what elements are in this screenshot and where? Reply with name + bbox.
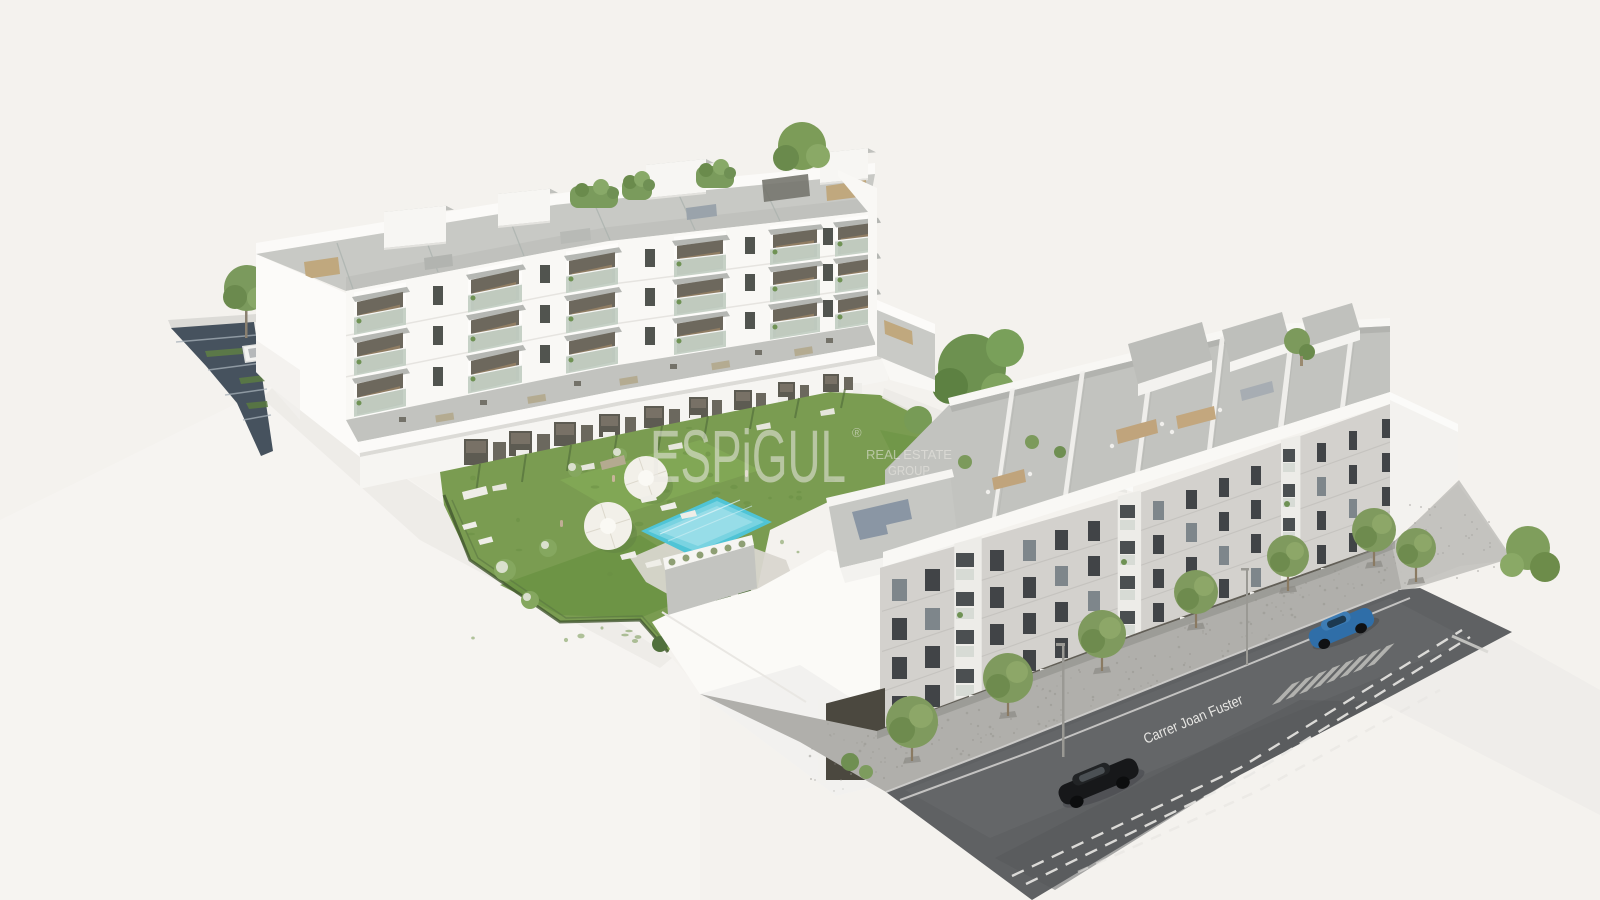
svg-text:ESPiGUL: ESPiGUL [650,415,846,498]
svg-text:REAL ESTATE: REAL ESTATE [866,447,952,462]
svg-text:GROUP: GROUP [888,463,930,478]
svg-text:®: ® [852,425,862,440]
